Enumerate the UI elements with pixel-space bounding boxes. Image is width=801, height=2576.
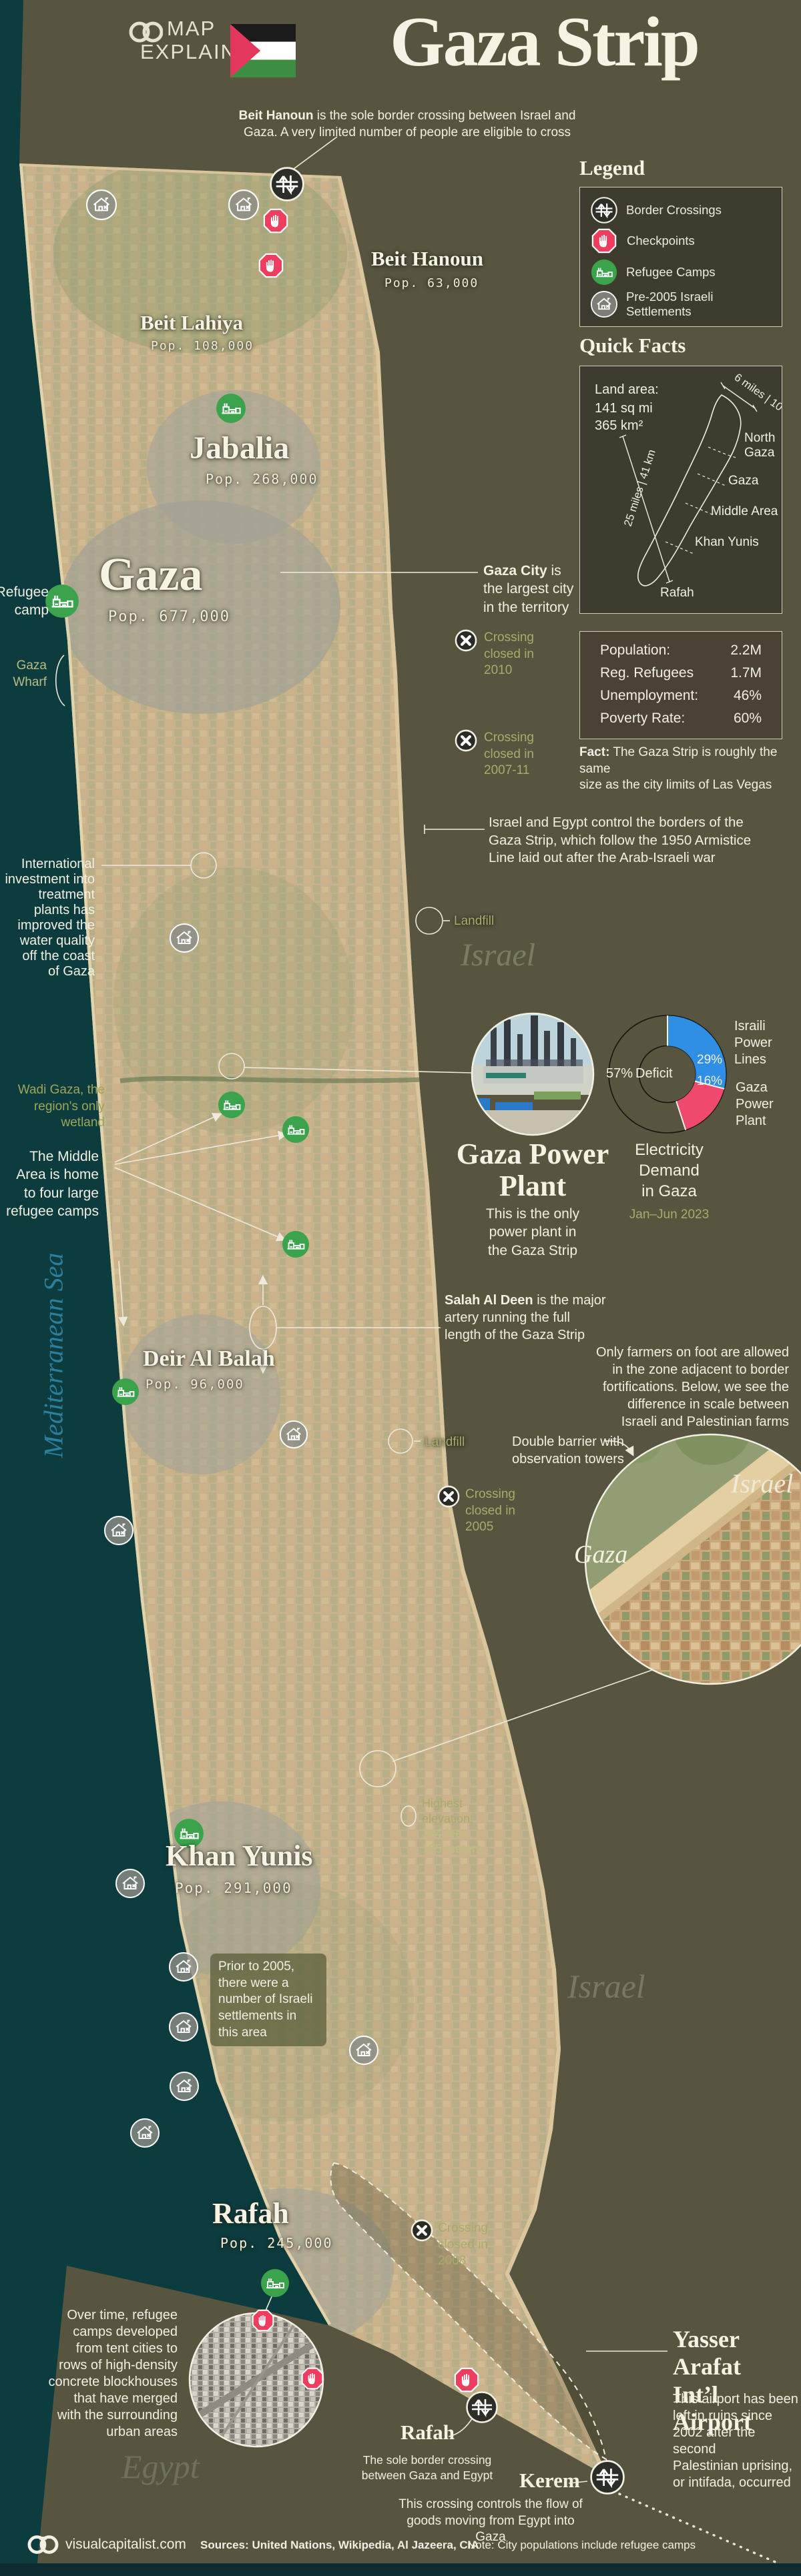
text-line: Israili	[734, 1018, 772, 1035]
prior-2005-annotation: Prior to 2005, there were a number of Is…	[210, 1954, 326, 2046]
checkpoint-icon	[454, 2367, 479, 2393]
quick-facts-stats-panel: Population: 2.2M Reg. Refugees 1.7M Unem…	[579, 631, 782, 739]
wadi-gaza-annotation: Wadi Gaza, the region's only wetland	[18, 1082, 105, 1132]
text-line: Power	[734, 1035, 772, 1051]
kerem-border-crossing-icon	[590, 2460, 625, 2495]
text-line: from tent cities to	[49, 2340, 178, 2357]
text-line: Gaza City is	[483, 562, 573, 580]
stat-value: 1.7M	[730, 665, 762, 681]
text-line: Refugee	[0, 583, 49, 601]
watermark-israel-north: Israel	[461, 937, 535, 973]
text-line: Plant	[736, 1113, 774, 1130]
text-line: investment into	[5, 872, 95, 887]
fact-note: Fact: The Gaza Strip is roughly the same…	[579, 745, 790, 794]
text-line: This is the only	[467, 1205, 598, 1223]
text-line: 2007-11	[484, 763, 534, 779]
text-line: elevation:	[422, 1811, 482, 1827]
stat-label: Unemployment:	[600, 688, 698, 704]
electricity-chart-subtitle: Jan–Jun 2023	[614, 1208, 724, 1222]
text-line: 2008	[438, 2253, 488, 2270]
settlement-icon	[130, 2118, 160, 2148]
text-line: Wadi Gaza, the	[18, 1082, 105, 1099]
quick-facts-map-panel: Land area: 141 sq mi 365 km² 6 miles | 1…	[579, 366, 782, 614]
text-line: Prior to 2005,	[218, 1959, 318, 1976]
city-pop-beit-hanoun: Pop. 63,000	[384, 276, 479, 290]
refugee-camp-icon	[591, 259, 617, 286]
text-line: improved the	[5, 918, 95, 933]
text-line: length of the Gaza Strip	[445, 1326, 606, 1344]
text-line: This airport has been	[673, 2391, 801, 2408]
text-line: closed in	[484, 747, 534, 763]
rafah-crossing-body: The sole border crossing between Gaza an…	[354, 2453, 501, 2483]
svg-text:Khan Yunis: Khan Yunis	[695, 535, 759, 549]
city-pop-khan-yunis: Pop. 291,000	[175, 1880, 292, 1896]
text-line: concrete blockhouses	[49, 2374, 178, 2391]
landfill-label-south: Landfill	[425, 1434, 465, 1451]
city-label-beit-lahiya: Beit Lahiya	[140, 311, 243, 335]
legend-label: Pre-2005 Israeli Settlements	[626, 290, 782, 319]
settlement-icon	[228, 189, 259, 220]
refugee-camp-icon	[260, 2268, 290, 2298]
text-line: Yasser Arafat	[673, 2326, 801, 2381]
footer-sources: Sources: United Nations, Wikipedia, Al J…	[200, 2539, 479, 2552]
text-line: camps developed	[49, 2324, 178, 2340]
text-line: closed in	[465, 1503, 515, 1520]
text-line: this area	[218, 2025, 318, 2042]
svg-text:Gaza: Gaza	[728, 474, 759, 488]
text-line: number of Israeli	[218, 1992, 318, 2008]
footer-note: Note: City populations include refugee c…	[467, 2539, 696, 2552]
svg-text:141 sq mi: 141 sq mi	[595, 401, 653, 416]
refugee-camp-icon	[111, 1378, 140, 1406]
closed-crossing-icon	[455, 729, 478, 753]
settlement-icon	[169, 1952, 198, 1982]
text-line: 105 meters	[422, 1841, 482, 1857]
donut-deficit-label: Deficit	[635, 1066, 673, 1082]
text-line: Gaza Power	[455, 1138, 610, 1170]
legend-title: Legend	[579, 156, 645, 180]
stat-label: Poverty Rate:	[600, 711, 685, 727]
city-label-khan-yunis: Khan Yunis	[166, 1839, 313, 1873]
text-line: off the coast	[5, 949, 95, 964]
crossing-2010-annotation: Crossing closed in 2010	[484, 630, 534, 679]
svg-text:25 miles | 41 km: 25 miles | 41 km	[622, 448, 658, 528]
text-line: between Gaza and Egypt	[354, 2468, 501, 2483]
checkpoint-icon	[258, 253, 284, 278]
text-line: Electricity	[614, 1140, 724, 1160]
text-line: Demand	[614, 1160, 724, 1181]
settlement-icon	[349, 2036, 378, 2065]
city-pop-deir-al-balah: Pop. 96,000	[146, 1377, 244, 1392]
text-line: Israeli and Palestinian farms	[596, 1413, 789, 1430]
text-line: artery running the full	[445, 1309, 606, 1326]
legend-label: Refugee Camps	[626, 265, 716, 280]
settlement-icon	[86, 189, 117, 220]
watermark-egypt: Egypt	[121, 2447, 200, 2486]
text-line: Gaza	[736, 1080, 774, 1096]
checkpoint-icon	[301, 2367, 324, 2390]
text-line: camp	[0, 601, 49, 619]
text-line: Power	[736, 1096, 774, 1113]
text-line: Fact: The Gaza Strip is roughly the same	[579, 745, 790, 777]
refugee-camp-icon	[282, 1230, 310, 1258]
gaza-city-annotation: Gaza City is the largest city in the ter…	[483, 562, 573, 616]
text-line: Plant	[455, 1170, 610, 1202]
donut-legend-gaza-power-plant: Gaza Power Plant	[736, 1080, 774, 1130]
landfill-label-north: Landfill	[454, 913, 494, 930]
city-label-jabalia: Jabalia	[190, 430, 289, 466]
infographic-gaza-strip: MAP EXPLAINER Gaza Strip Beit Hanoun is …	[0, 0, 801, 2576]
text-line: Highest	[422, 1796, 482, 1811]
crossing-2008-annotation: Crossing closed in 2008	[438, 2220, 488, 2270]
text-line: power plant in	[467, 1223, 598, 1241]
city-pop-rafah: Pop. 245,000	[220, 2235, 333, 2251]
erez-border-crossing-icon	[270, 167, 304, 201]
legend-item-border-crossings: Border Crossings	[591, 197, 722, 224]
elevation-annotation: Highest elevation: 344 feet 105 meters	[422, 1796, 482, 1856]
legend-item-checkpoints: Checkpoints	[591, 228, 695, 254]
watermark-mediterranean-sea: Mediterranean Sea	[38, 1236, 69, 1476]
mini-map: Land area: 141 sq mi 365 km² 6 miles | 1…	[580, 366, 782, 613]
stat-value: 60%	[734, 711, 762, 727]
settlement-icon	[104, 1516, 133, 1545]
settlement-icon	[170, 2072, 199, 2101]
settlement-icon	[169, 2012, 198, 2042]
text-line: urban areas	[49, 2424, 178, 2441]
text-line: Crossing	[438, 2220, 488, 2237]
donut-legend-israili-power-lines: Israili Power Lines	[734, 1018, 772, 1068]
page-title: Gaza Strip	[300, 1, 788, 83]
text-line: there were a	[218, 1976, 318, 1992]
text-line: 2002 after the second	[673, 2425, 801, 2458]
text-line: The sole border crossing	[354, 2453, 501, 2468]
text-line: Line laid out after the Arab-Israeli war	[489, 849, 751, 867]
text-line: refugee camps	[6, 1202, 99, 1220]
kerem-title: Kerem	[519, 2469, 580, 2493]
rafah-crossing-title: Rafah	[400, 2421, 455, 2445]
svg-text:Rafah: Rafah	[660, 586, 694, 600]
power-plant-title: Gaza Power Plant	[455, 1138, 610, 1203]
inset-gaza-label: Gaza	[574, 1540, 627, 1569]
quick-facts-title: Quick Facts	[579, 334, 686, 358]
text-line: International	[5, 857, 95, 872]
text-line: Crossing	[465, 1486, 515, 1503]
inset-israel-label: Israel	[731, 1468, 793, 1499]
double-barrier-annotation: Double barrier with observation towers	[512, 1433, 624, 1468]
text-line: Over time, refugee	[49, 2307, 178, 2324]
investment-annotation: International investment into treatment …	[5, 857, 95, 979]
palestine-flag	[230, 24, 296, 77]
stat-value: 2.2M	[730, 642, 762, 659]
text-line: Israel and Egypt control the borders of …	[489, 814, 751, 832]
refugee-camp-icon	[282, 1116, 310, 1144]
footer-site: visualcapitalist.com	[65, 2537, 186, 2553]
svg-text:Gaza: Gaza	[744, 446, 775, 460]
power-plant-body: This is the only power plant in the Gaza…	[467, 1205, 598, 1260]
checkpoint-icon	[263, 208, 288, 234]
borders-annotation: Israel and Egypt control the borders of …	[489, 814, 751, 867]
stat-label: Reg. Refugees	[600, 665, 694, 681]
legend-label: Border Crossings	[626, 203, 722, 218]
text-line: 2005	[465, 1519, 515, 1536]
text-line: size as the city limits of Las Vegas	[579, 777, 790, 794]
text-line: fortifications. Below, we see the	[596, 1378, 789, 1396]
text-line: the largest city	[483, 580, 573, 598]
donut-deficit-pct: 57%	[606, 1066, 633, 1082]
text-line: water quality	[5, 933, 95, 949]
city-label-rafah: Rafah	[212, 2196, 289, 2230]
text-line: Gaza Strip, which follow the 1950 Armist…	[489, 832, 751, 850]
electricity-chart-title: Electricity Demand in Gaza	[614, 1140, 724, 1202]
svg-text:Middle Area: Middle Area	[711, 504, 778, 518]
text-line: left in ruins since	[673, 2408, 801, 2425]
city-label-beit-hanoun: Beit Hanoun	[371, 247, 483, 271]
text-line: Salah Al Deen is the major	[445, 1292, 606, 1309]
text-line: Crossing	[484, 730, 534, 747]
airport-body: This airport has been left in ruins sinc…	[673, 2391, 801, 2491]
text-line: the Gaza Strip	[467, 1242, 598, 1260]
salah-al-deen-annotation: Salah Al Deen is the major artery runnin…	[445, 1292, 606, 1344]
text-line: The Middle	[6, 1148, 99, 1166]
text-line: Beit Hanoun is the sole border crossing …	[220, 108, 594, 125]
legend-label: Checkpoints	[627, 234, 695, 248]
refugee-camp-icon	[218, 1091, 246, 1119]
checkpoint-icon	[591, 228, 617, 254]
visual-capitalist-footer-logo-icon	[25, 2530, 60, 2559]
farmers-annotation: Only farmers on foot are allowed in the …	[596, 1344, 789, 1430]
donut-blue-pct: 29%	[697, 1053, 722, 1067]
text-line: to four large	[6, 1184, 99, 1202]
city-label-gaza: Gaza	[99, 548, 203, 602]
intro-annotation: Beit Hanoun is the sole border crossing …	[220, 108, 594, 141]
text-line: with the surrounding	[49, 2407, 178, 2424]
text-line: closed in	[438, 2237, 488, 2254]
middle-area-annotation: The Middle Area is home to four large re…	[6, 1148, 99, 1220]
text-line: that have merged	[49, 2391, 178, 2407]
svg-text:365 km²: 365 km²	[595, 418, 643, 433]
text-line: Wharf	[13, 675, 47, 691]
text-line: difference in scale between	[596, 1396, 789, 1413]
settlement-icon	[170, 923, 199, 953]
text-line: 2010	[484, 663, 534, 679]
text-line: settlements in	[218, 2008, 318, 2025]
svg-text:Land area:: Land area:	[595, 382, 659, 397]
crossing-2005-annotation: Crossing closed in 2005	[465, 1486, 515, 1536]
text-line: in Gaza	[614, 1181, 724, 1202]
text-line: wetland	[18, 1115, 105, 1132]
text-line: or intifada, occurred	[673, 2475, 801, 2491]
text-line: Only farmers on foot are allowed	[596, 1344, 789, 1361]
city-label-deir-al-balah: Deir Al Balah	[143, 1346, 275, 1372]
crossing-2007-annotation: Crossing closed in 2007-11	[484, 730, 534, 779]
refugee-camp-icon	[45, 584, 79, 618]
settlement-icon	[115, 1869, 145, 1898]
checkpoint-icon	[252, 2309, 274, 2332]
legend-panel: Border Crossings Checkpoints Refugee Cam…	[579, 187, 782, 327]
text-line: Gaza. A very limited number of people ar…	[220, 125, 594, 141]
city-pop-gaza: Pop. 677,000	[108, 608, 230, 625]
border-crossing-icon	[591, 197, 617, 224]
text-line: treatment	[5, 887, 95, 903]
closed-crossing-icon	[437, 1485, 461, 1509]
legend-item-refugee-camps: Refugee Camps	[591, 259, 716, 286]
text-line: of Gaza	[5, 964, 95, 979]
text-line: plants has	[5, 903, 95, 918]
watermark-israel-south: Israel	[567, 1967, 645, 2006]
text-line: Palestinian uprising,	[673, 2458, 801, 2475]
text-line: 344 feet	[422, 1826, 482, 1841]
donut-pink-pct: 16%	[697, 1074, 722, 1089]
text-line: region's only	[18, 1099, 105, 1116]
city-pop-beit-lahiya: Pop. 108,000	[151, 339, 254, 353]
text-line: Crossing	[484, 630, 534, 647]
svg-text:North: North	[744, 431, 775, 445]
refugee-camp-icon	[216, 393, 246, 424]
text-line: Gaza	[13, 658, 47, 675]
text-line: observation towers	[512, 1450, 624, 1468]
settlement-icon	[591, 291, 617, 318]
settlement-icon	[280, 1420, 308, 1448]
text-line: Double barrier with	[512, 1433, 624, 1450]
text-line: Area is home	[6, 1166, 99, 1184]
gaza-wharf-label: Gaza Wharf	[13, 658, 47, 691]
stat-value: 46%	[734, 688, 762, 704]
camps-growth-annotation: Over time, refugee camps developed from …	[49, 2307, 178, 2441]
closed-crossing-icon	[411, 2219, 434, 2242]
closed-crossing-icon	[455, 629, 478, 653]
refugee-camp-callout: Refugee camp	[0, 583, 49, 620]
text-line: closed in	[484, 647, 534, 663]
kerem-flow-dotted-line	[619, 2494, 800, 2573]
text-line: rows of high-density	[49, 2357, 178, 2374]
city-pop-jabalia: Pop. 268,000	[206, 471, 318, 487]
rafah-border-crossing-icon	[466, 2391, 498, 2423]
stat-label: Population:	[600, 642, 670, 659]
text-line: Lines	[734, 1051, 772, 1068]
legend-item-settlements: Pre-2005 Israeli Settlements	[591, 290, 782, 319]
text-line: in the zone adjacent to border	[596, 1361, 789, 1378]
text-line: This crossing controls the flow of	[394, 2497, 587, 2513]
footer-bar	[0, 2563, 801, 2576]
text-line: in the territory	[483, 598, 573, 616]
